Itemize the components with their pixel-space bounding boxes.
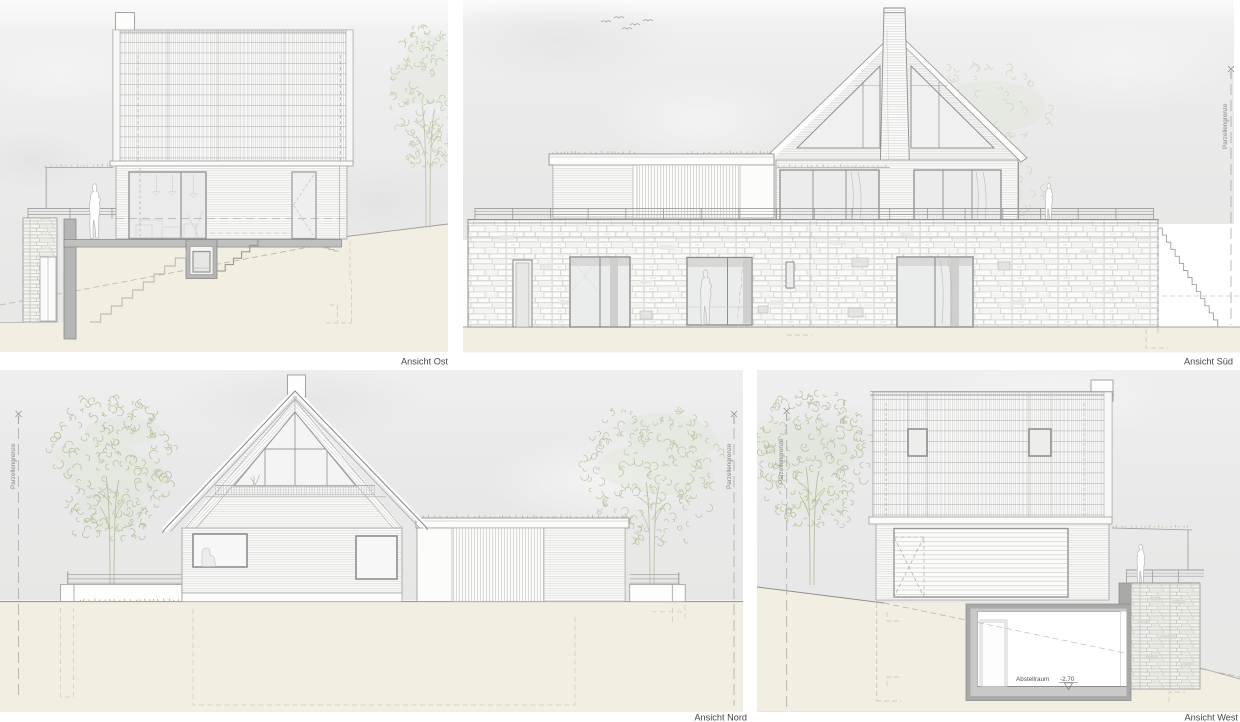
svg-text:Parzellengrenze: Parzellengrenze bbox=[778, 438, 785, 484]
svg-text:Ansicht West: Ansicht West bbox=[1185, 713, 1239, 722]
svg-text:Parzellengrenze: Parzellengrenze bbox=[726, 443, 733, 489]
svg-text:Parzellengrenze: Parzellengrenze bbox=[1222, 103, 1229, 149]
svg-text:Ansicht Nord: Ansicht Nord bbox=[694, 713, 747, 722]
svg-text:-2.70: -2.70 bbox=[1060, 676, 1075, 683]
svg-text:Abstellraum: Abstellraum bbox=[1016, 676, 1049, 683]
svg-text:Ansicht Ost: Ansicht Ost bbox=[401, 357, 448, 367]
svg-text:Parzellengrenze: Parzellengrenze bbox=[10, 443, 17, 489]
svg-text:Ansicht Süd: Ansicht Süd bbox=[1184, 357, 1233, 367]
